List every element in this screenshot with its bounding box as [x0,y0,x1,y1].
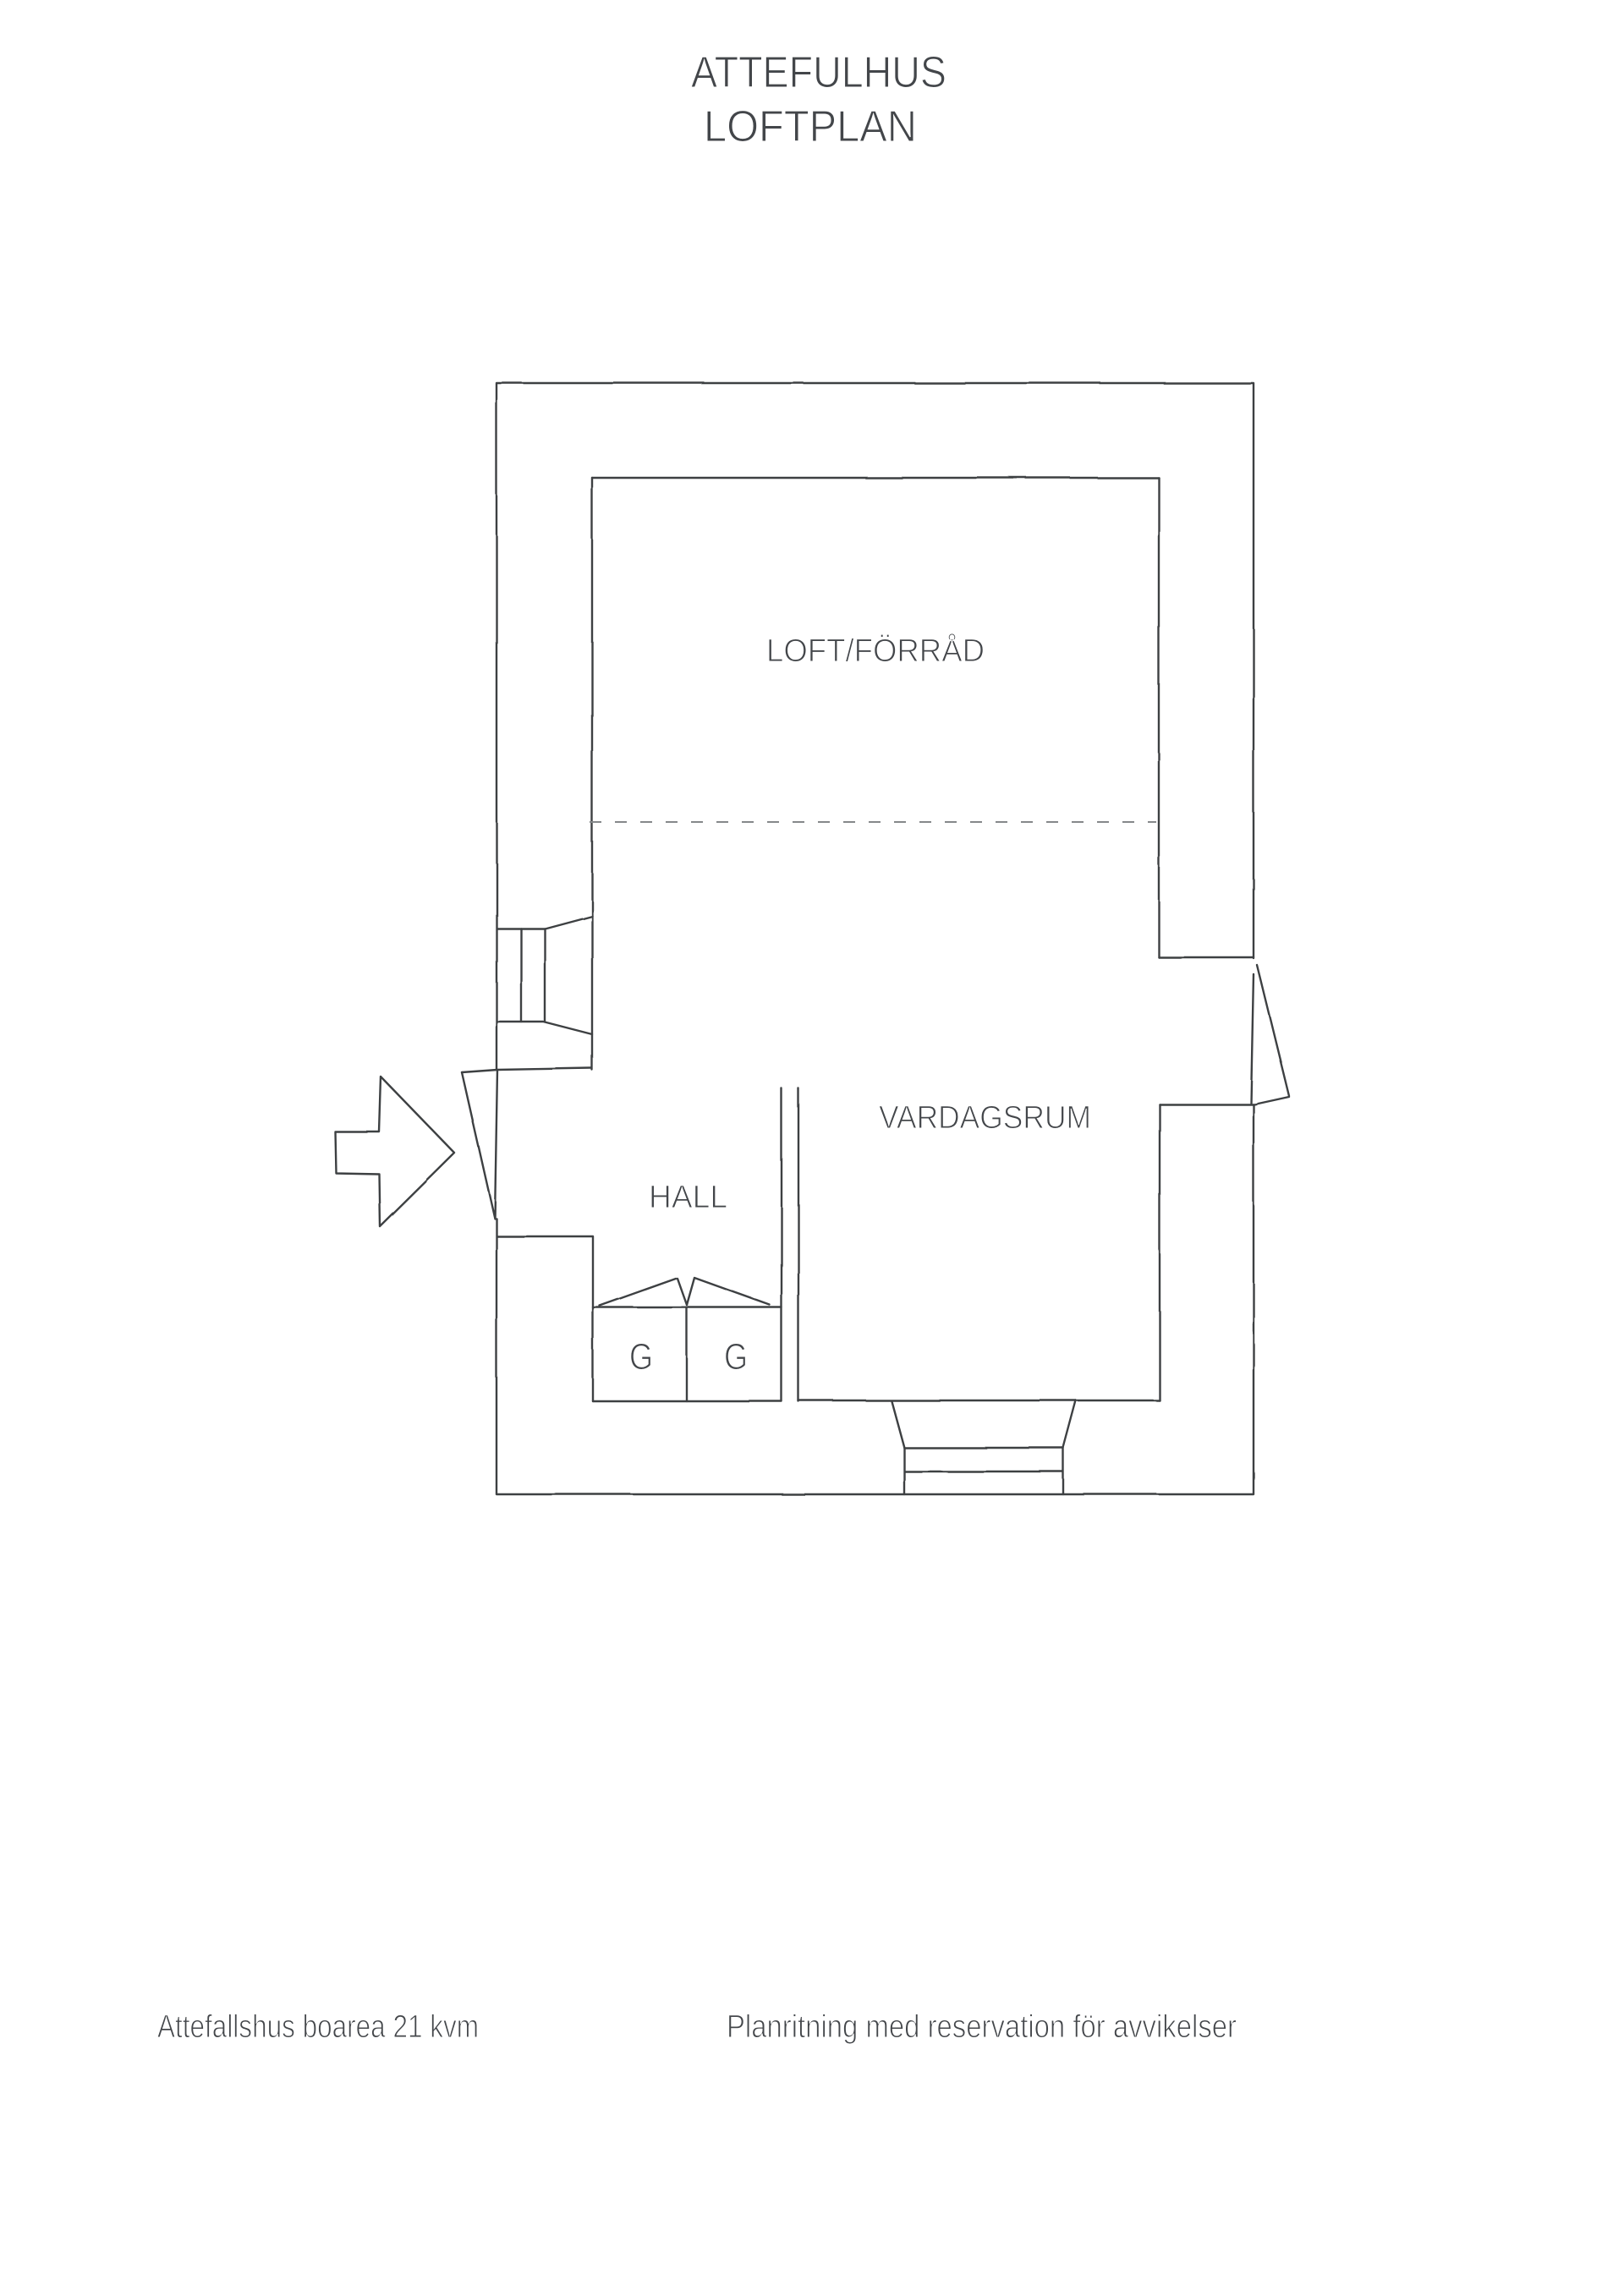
svg-text:Attefallshus boarea 21 kvm: Attefallshus boarea 21 kvm [157,2009,479,2045]
svg-text:LOFT/FÖRRÅD: LOFT/FÖRRÅD [766,632,985,669]
svg-text:LOFTPLAN: LOFTPLAN [704,102,917,151]
svg-text:VARDAGSRUM: VARDAGSRUM [879,1100,1091,1136]
svg-text:G: G [724,1336,748,1378]
svg-text:G: G [629,1336,653,1378]
svg-text:ATTEFULHUS: ATTEFULHUS [691,48,946,97]
svg-text:HALL: HALL [649,1180,727,1215]
svg-text:Planritning med reservation fö: Planritning med reservation för avvikels… [727,2009,1237,2045]
